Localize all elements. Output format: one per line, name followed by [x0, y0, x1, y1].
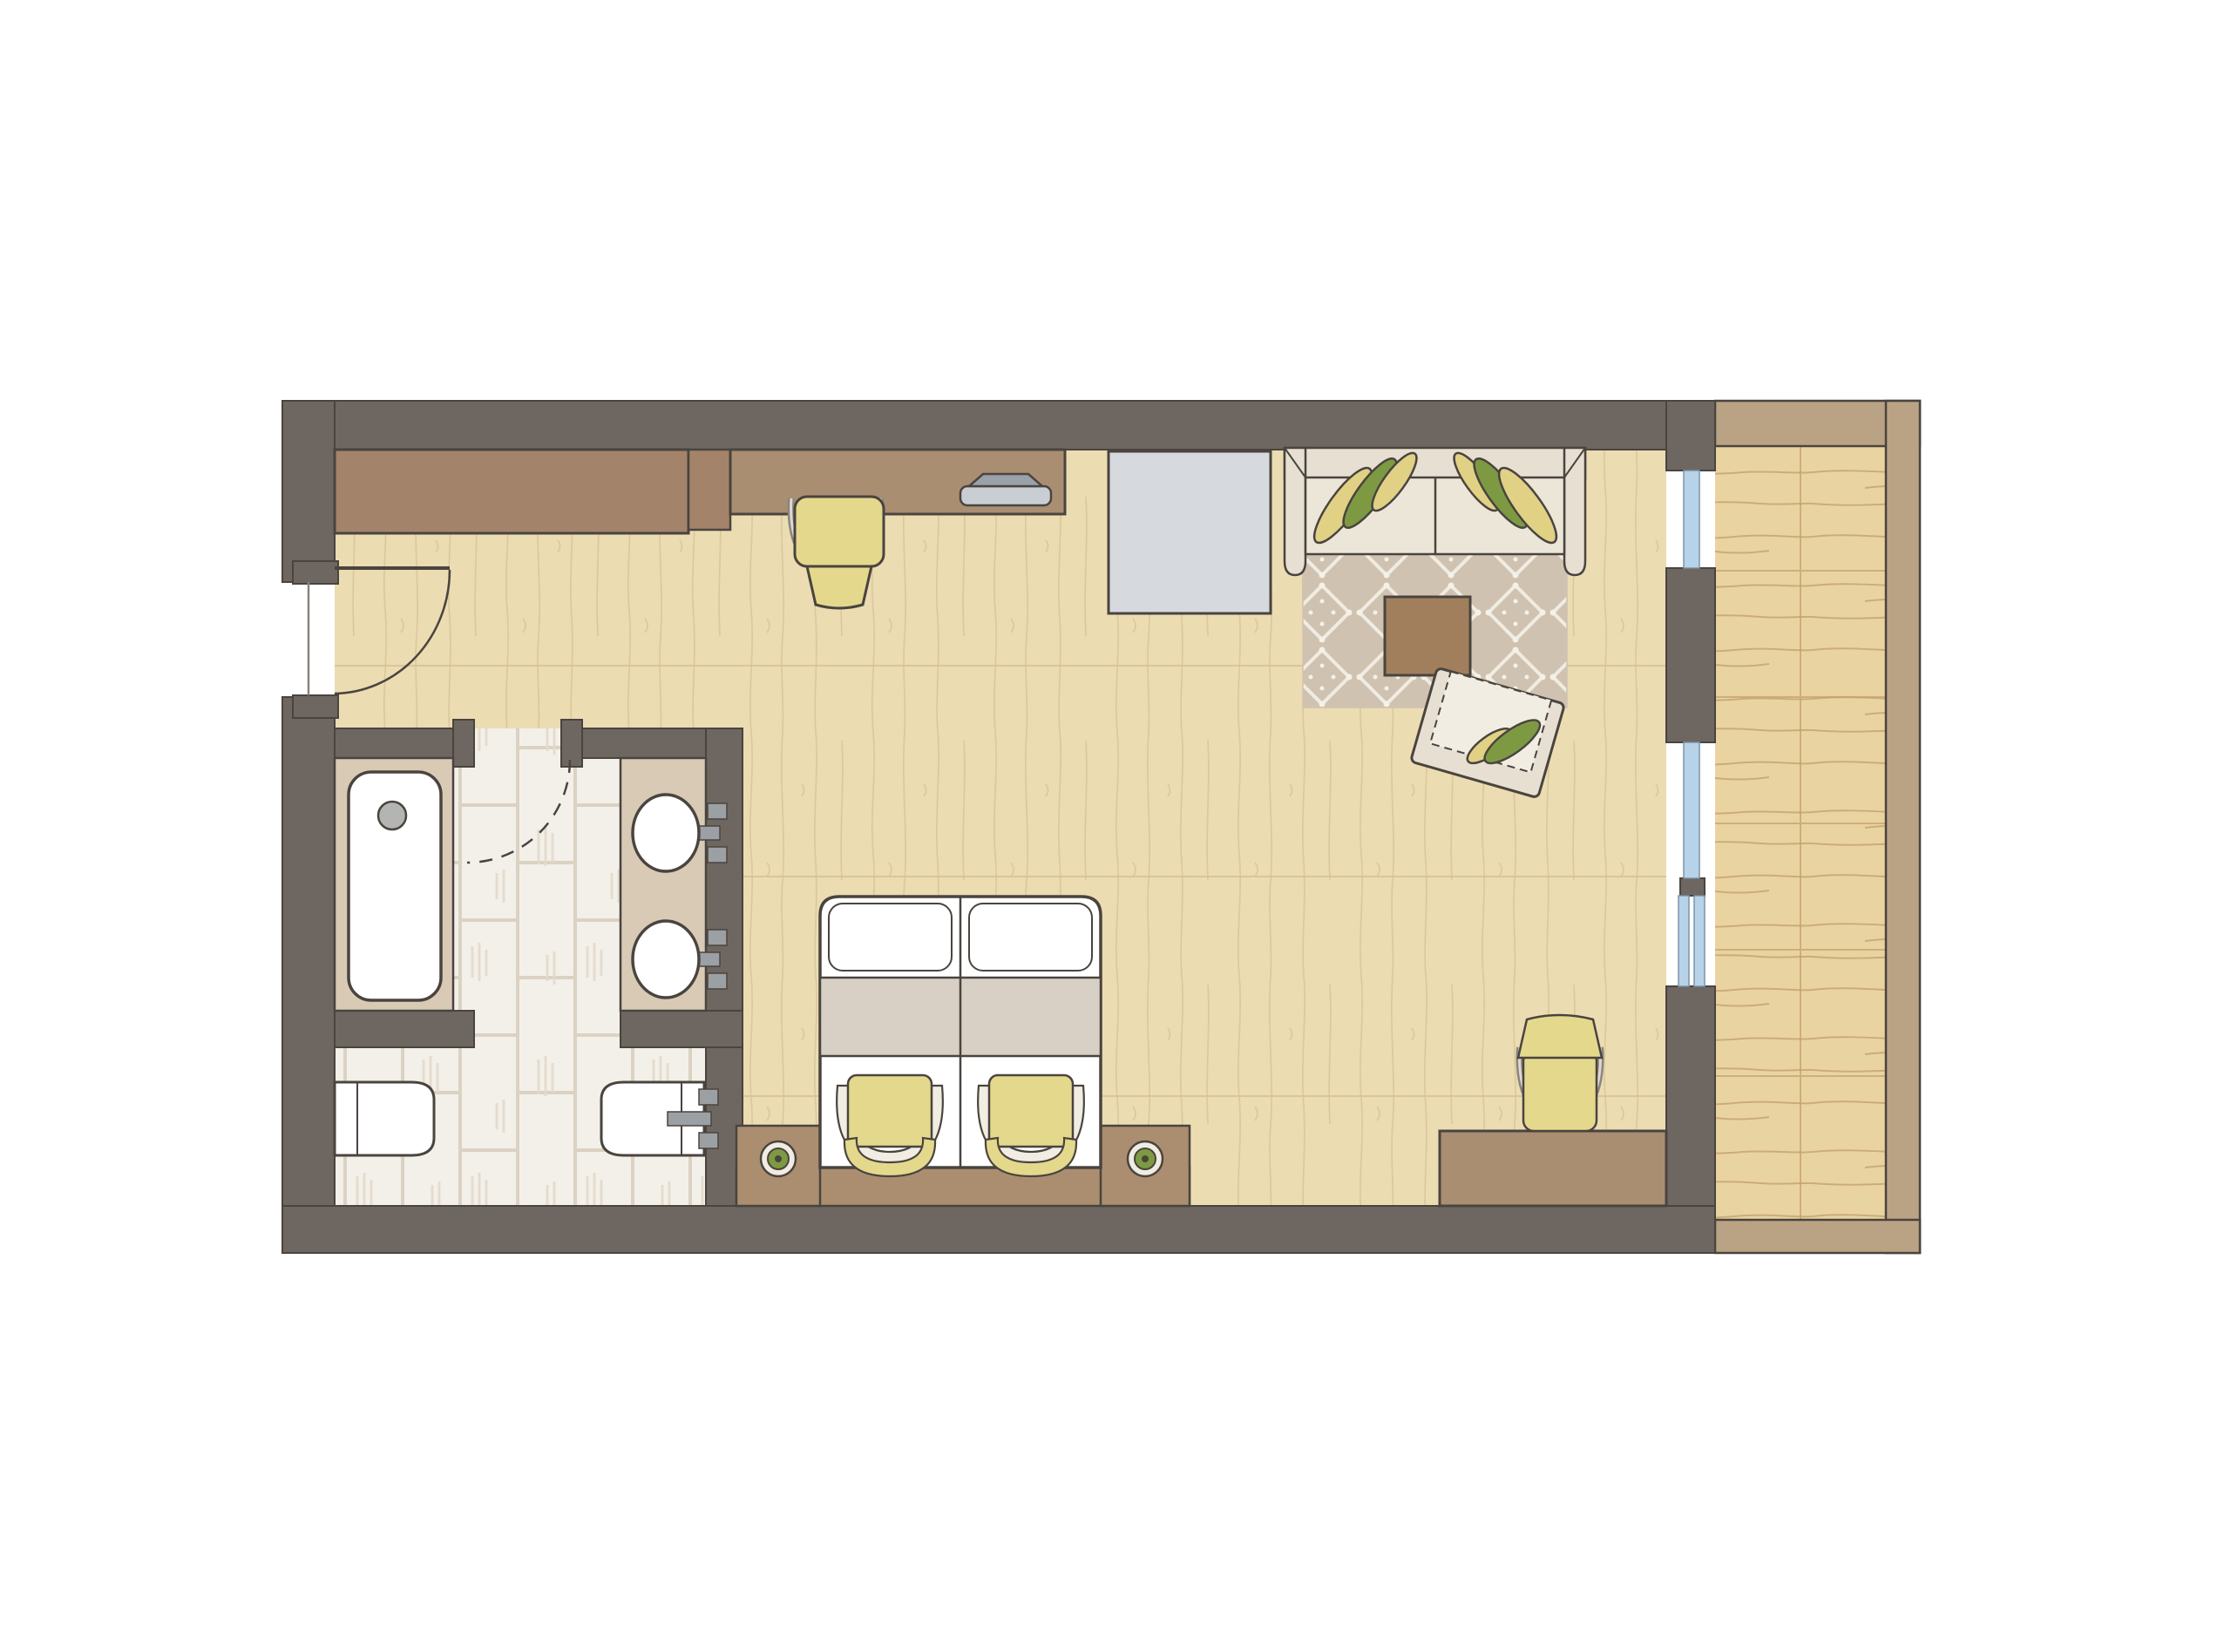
bedside-lamp-left [761, 1141, 796, 1176]
exterior-wall-bottom [282, 1206, 1715, 1253]
faucet-tab [708, 973, 727, 989]
bed-stool-left [837, 1075, 943, 1176]
sofa-arm-left [1285, 448, 1305, 575]
lamp-center [775, 1155, 782, 1162]
stool-seat [989, 1075, 1073, 1147]
desk-chair-back [807, 566, 871, 608]
sofa-arm-right [1564, 448, 1585, 575]
exterior-wall-top [282, 401, 1666, 450]
sink-basin [633, 921, 699, 998]
console-chair-back [1518, 1015, 1602, 1058]
exterior-wall-left-lower [282, 697, 335, 1253]
tv-cabinet [1109, 451, 1271, 613]
window-glazing-2 [1684, 742, 1699, 878]
wardrobe-return [688, 450, 730, 530]
window-pier-top [1666, 401, 1715, 471]
sliding-door-leaf-a [1678, 896, 1689, 986]
window-glazing-1 [1684, 471, 1699, 568]
sink-bottom [633, 921, 727, 998]
laptop-base [960, 486, 1051, 505]
bathroom-stub-wall-right [620, 1011, 743, 1047]
faucet-tab [699, 1133, 718, 1148]
laptop-lid [969, 474, 1042, 486]
faucet-tab [708, 847, 727, 863]
faucet-tab [699, 1089, 718, 1105]
bathroom-wall-top-left [335, 728, 453, 758]
stool-seat [848, 1075, 932, 1147]
bathroom-door-jamb-right [561, 720, 582, 767]
toilet-body [335, 1082, 434, 1155]
sliding-door-leaf-b [1694, 896, 1705, 986]
floor-plan-page [0, 0, 2231, 1652]
window-pier-bottom [1666, 986, 1715, 1206]
exterior-wall-left-upper [282, 401, 335, 582]
sink-basin [633, 795, 699, 871]
tub-drain [378, 802, 406, 829]
lamp-center [1142, 1155, 1149, 1162]
toilet [335, 1082, 434, 1155]
bathroom-stub-wall-left [335, 1011, 474, 1047]
doorway-tiles [471, 728, 566, 763]
desk-chair-seat [795, 497, 884, 566]
faucet-tab [708, 803, 727, 819]
coffee-table [1385, 597, 1470, 675]
bed-stool-right [978, 1075, 1084, 1176]
faucet-bar [668, 1112, 711, 1126]
console-desk [1440, 1131, 1666, 1206]
console-chair [1518, 1015, 1602, 1131]
bathroom-door-jamb-left [453, 720, 474, 767]
entry-jamb-top [293, 561, 338, 584]
console-chair-seat [1523, 1051, 1597, 1131]
bedside-lamp-right [1128, 1141, 1163, 1176]
wardrobe [335, 450, 688, 533]
window-mullion [1680, 878, 1705, 896]
faucet-tab [708, 930, 727, 945]
sink-top [633, 795, 727, 871]
entry-jamb-bottom [293, 695, 338, 718]
bidet [601, 1082, 718, 1155]
balcony [1715, 401, 1920, 1253]
sofa-back [1285, 448, 1585, 479]
floor-plan [0, 0, 2231, 1652]
window-pier-middle [1666, 568, 1715, 742]
